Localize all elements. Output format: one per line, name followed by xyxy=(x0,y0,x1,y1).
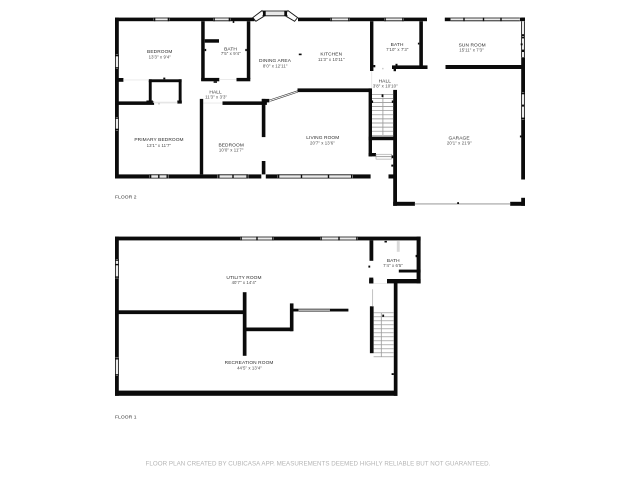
svg-text:10'0" x 11'7": 10'0" x 11'7" xyxy=(219,148,244,153)
svg-text:FLOOR 1: FLOOR 1 xyxy=(115,414,137,420)
svg-text:13'1" x 11'7": 13'1" x 11'7" xyxy=(147,143,172,148)
svg-text:11'3" x 10'11": 11'3" x 10'11" xyxy=(318,57,345,62)
svg-text:3'8" x 10'10": 3'8" x 10'10" xyxy=(373,83,398,88)
svg-text:11'3" x 3'3": 11'3" x 3'3" xyxy=(205,95,227,100)
svg-text:7'5" x 9'4": 7'5" x 9'4" xyxy=(221,51,241,56)
svg-text:FLOOR 2: FLOOR 2 xyxy=(115,194,137,200)
svg-text:FLOOR PLAN CREATED BY CUBICASA: FLOOR PLAN CREATED BY CUBICASA APP. MEAS… xyxy=(146,461,491,468)
svg-text:13'3" x 9'4": 13'3" x 9'4" xyxy=(149,55,172,60)
svg-text:20'1" x 21'9": 20'1" x 21'9" xyxy=(447,141,472,146)
svg-text:7'4" x 6'5": 7'4" x 6'5" xyxy=(383,263,403,268)
svg-text:44'5" x 13'4": 44'5" x 13'4" xyxy=(237,365,262,370)
svg-text:20'7" x 13'6": 20'7" x 13'6" xyxy=(310,141,335,146)
svg-text:40'7" x 14'4": 40'7" x 14'4" xyxy=(232,280,257,285)
svg-text:15'11" x 7'3": 15'11" x 7'3" xyxy=(459,48,484,53)
svg-text:8'0" x 12'11": 8'0" x 12'11" xyxy=(263,64,288,69)
svg-text:7'10" x 7'3": 7'10" x 7'3" xyxy=(386,47,409,52)
